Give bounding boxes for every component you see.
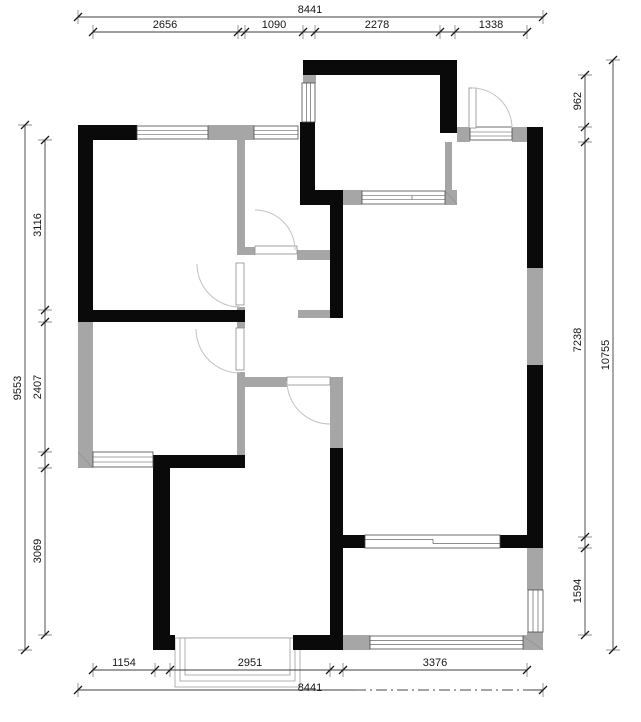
window-middle-left-room xyxy=(93,452,153,467)
bedroom2-door-arc xyxy=(196,329,240,373)
window-balcony-side xyxy=(528,590,543,632)
bedroom3-door-leaf xyxy=(287,377,330,385)
dim-bottom-seg-1: 1154 xyxy=(112,657,136,669)
bedroom3-door-arc xyxy=(287,381,330,424)
window-kitchen-bottom xyxy=(362,191,445,204)
dim-top-seg-4: 1338 xyxy=(479,19,503,31)
dim-bottom-seg-3: 3376 xyxy=(423,657,447,669)
dim-bottom-total: 8441 xyxy=(298,682,322,694)
window-kitchen-side xyxy=(302,83,315,122)
dim-left-seg-2: 2407 xyxy=(32,375,44,399)
sliding-door-living-balcony xyxy=(365,535,500,548)
dim-left-seg-1: 3116 xyxy=(32,213,44,237)
entry-door-threshold xyxy=(470,127,512,140)
dim-bottom-seg-2: 2951 xyxy=(238,657,262,669)
dim-top-total: 8441 xyxy=(298,4,322,16)
window-top-left xyxy=(137,126,208,139)
dim-right-seg-2: 7238 xyxy=(572,328,584,352)
dim-top-seg-3: 2278 xyxy=(365,19,389,31)
floorplan-page: 8441 2656 1090 2278 1338 9553 3116 2407 … xyxy=(0,0,641,722)
bathroom-door-leaf xyxy=(255,246,297,254)
entry-door-arc xyxy=(472,88,512,128)
dim-left-total: 9553 xyxy=(12,376,24,400)
dim-right-seg-3: 1594 xyxy=(572,579,584,603)
bedroom2-door-leaf xyxy=(236,328,244,370)
dim-left-seg-3: 3069 xyxy=(32,539,44,563)
dim-top-seg-1: 2656 xyxy=(153,19,177,31)
window-bathroom xyxy=(254,126,298,139)
dim-top-seg-2: 1090 xyxy=(262,19,286,31)
floor-plan-drawing: 8441 2656 1090 2278 1338 9553 3116 2407 … xyxy=(0,0,641,722)
bearing-walls xyxy=(78,60,543,650)
dim-right-seg-1: 962 xyxy=(572,92,584,110)
bedroom1-door-leaf xyxy=(236,263,244,305)
bathroom-door-arc xyxy=(255,210,295,250)
dimension-lines xyxy=(25,17,613,690)
bedroom1-door-arc xyxy=(197,264,240,307)
window-balcony-bottom xyxy=(370,636,523,649)
dim-right-total: 10755 xyxy=(600,340,612,371)
entry-door-leaf xyxy=(469,88,476,128)
